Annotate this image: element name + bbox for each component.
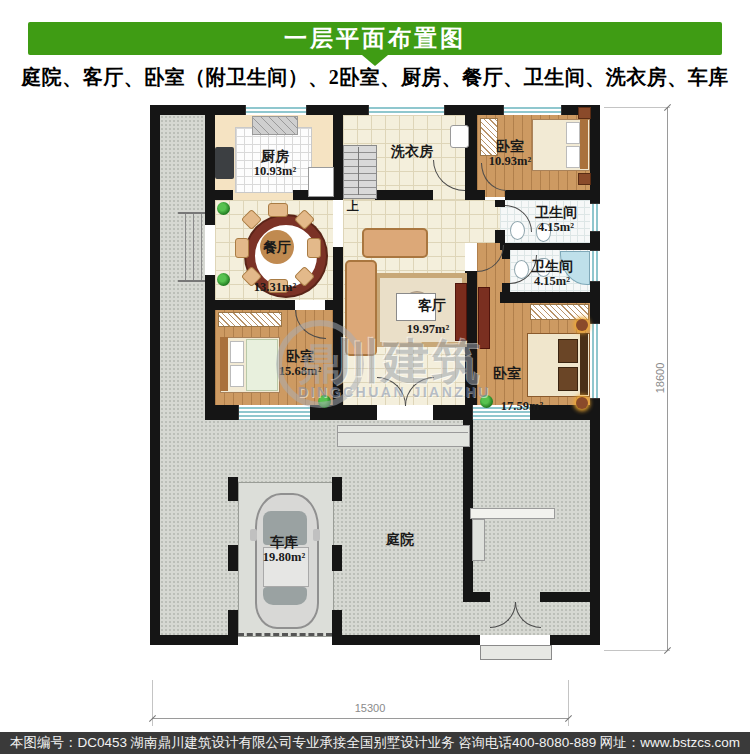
dresser-icon xyxy=(478,287,490,349)
wall xyxy=(332,545,342,571)
room-label-bedroom-right: 卧室 xyxy=(493,366,521,381)
pillow-icon xyxy=(558,367,578,391)
bed-headboard xyxy=(580,119,588,169)
wall xyxy=(228,610,238,635)
pillow-icon xyxy=(230,365,244,387)
plant-icon xyxy=(480,395,493,408)
sink-icon xyxy=(510,221,525,240)
room-label-bath-1: 卫生间 4.15m² xyxy=(535,205,577,234)
wall xyxy=(495,200,505,207)
wall xyxy=(550,635,600,645)
lamp-icon xyxy=(576,397,588,409)
pillow-icon xyxy=(566,122,580,144)
wall xyxy=(333,247,343,420)
window xyxy=(245,105,307,115)
wall xyxy=(205,405,238,420)
dim-line-bottom xyxy=(152,718,569,719)
footer-bar: 本图编号：DC0453 湖南鼎川建筑设计有限公司专业承接全国别墅设计业务 咨询电… xyxy=(0,732,750,754)
tv-stand-icon xyxy=(455,283,467,341)
washer-icon xyxy=(450,125,469,148)
sofa-icon xyxy=(362,228,428,258)
page-title: 一层平面布置图 xyxy=(284,23,466,54)
car-mirror xyxy=(250,529,257,541)
footer-phone: 咨询电话400-8080-889 xyxy=(458,734,596,752)
window xyxy=(590,323,600,399)
wall xyxy=(495,230,505,243)
bed-headboard xyxy=(580,333,588,395)
plant-icon xyxy=(217,273,230,286)
wall xyxy=(332,610,342,635)
wall xyxy=(500,292,590,303)
footer-website: 网址：www.bstzcs.com xyxy=(600,734,740,752)
room-label-kitchen: 厨房 10.93m² xyxy=(254,149,296,178)
wall xyxy=(310,405,377,420)
staircase xyxy=(343,145,377,199)
wall xyxy=(500,243,590,250)
room-label-garage: 车库 19.80m² xyxy=(263,535,305,564)
car-mirror xyxy=(313,529,320,541)
room-area-bedroom-right: 17.59m² xyxy=(501,399,543,413)
room-summary-text: 庭院、客厅、卧室（附卫生间）、2卧室、厨房、餐厅、卫生间、洗衣房、车库 xyxy=(0,64,750,91)
wall xyxy=(375,190,433,200)
room-label-courtyard: 庭院 xyxy=(386,532,414,547)
page-title-bar: 一层平面布置图 xyxy=(28,22,722,55)
wall xyxy=(332,477,342,501)
entry-steps xyxy=(178,212,205,282)
wall xyxy=(505,190,590,200)
wall xyxy=(463,592,490,602)
room-label-bedroom-top: 卧室 10.93m² xyxy=(489,139,531,168)
footer-drawing-number: 本图编号：DC0453 xyxy=(10,734,127,752)
dim-height-label: 18600 xyxy=(654,348,666,408)
nightstand-icon xyxy=(578,173,591,185)
window xyxy=(503,105,562,115)
garage-door-dashed xyxy=(238,633,332,636)
dim-extension-line xyxy=(604,107,670,108)
room-label-living: 客厅 xyxy=(418,298,446,313)
wall xyxy=(205,115,215,225)
wall xyxy=(332,635,480,645)
room-label-bath-2: 卫生间 4.15m² xyxy=(531,259,573,288)
sofa-icon xyxy=(345,260,377,356)
stove-icon xyxy=(215,147,234,179)
wall xyxy=(333,115,343,200)
plant-icon xyxy=(318,395,331,408)
wall xyxy=(325,300,343,310)
room-area-dining: 13.31m² xyxy=(254,280,296,294)
floor-plan: 厨房 10.93m² 洗衣房 卧室 10.93m² 卫生间 4.15m² 卫生间… xyxy=(150,105,600,645)
room-label-dining: 餐厅 xyxy=(263,240,291,255)
room-area-living: 19.97m² xyxy=(407,322,449,336)
wall xyxy=(205,275,215,420)
stair-rail xyxy=(358,147,359,195)
wall xyxy=(433,405,472,420)
stair-up-label: 上 xyxy=(347,199,359,214)
fridge-icon xyxy=(308,167,334,197)
closet-icon xyxy=(530,304,589,320)
nightstand-icon xyxy=(578,107,591,119)
chair-icon xyxy=(268,203,288,217)
duvet-icon xyxy=(246,339,278,391)
dim-line-right xyxy=(667,107,668,650)
plant-icon xyxy=(217,202,230,215)
wall xyxy=(540,592,590,602)
wall xyxy=(502,283,510,292)
wall xyxy=(215,190,233,200)
window xyxy=(590,203,600,232)
chair-icon xyxy=(307,238,321,258)
dim-width-label: 15300 xyxy=(340,702,400,714)
window xyxy=(238,405,312,420)
wall xyxy=(150,635,238,645)
porch-step-line xyxy=(337,432,468,433)
window xyxy=(590,250,600,282)
car-rear-window xyxy=(263,587,307,605)
pillow-icon xyxy=(230,341,244,363)
wall xyxy=(228,545,238,571)
courtyard-step xyxy=(470,508,555,519)
window xyxy=(368,105,445,115)
sink-icon xyxy=(514,260,529,279)
gate-step xyxy=(480,645,552,660)
courtyard-pillar xyxy=(472,519,485,561)
range-hood-icon xyxy=(252,116,298,135)
dim-extension-line xyxy=(604,650,670,651)
pillow-icon xyxy=(566,146,580,168)
wall xyxy=(465,190,485,200)
closet-icon xyxy=(218,312,282,327)
wall xyxy=(150,105,160,645)
porch-steps xyxy=(337,425,470,447)
bed-headboard xyxy=(220,337,228,391)
room-label-bedroom-left: 卧室 15.68m² xyxy=(279,349,321,378)
wall xyxy=(228,477,238,501)
footer-company: 湖南鼎川建筑设计有限公司专业承接全国别墅设计业务 xyxy=(131,734,455,752)
chair-icon xyxy=(235,238,249,258)
room-label-laundry: 洗衣房 xyxy=(391,144,433,159)
wall xyxy=(205,300,295,310)
pillow-icon xyxy=(558,339,578,363)
lamp-icon xyxy=(576,319,588,331)
